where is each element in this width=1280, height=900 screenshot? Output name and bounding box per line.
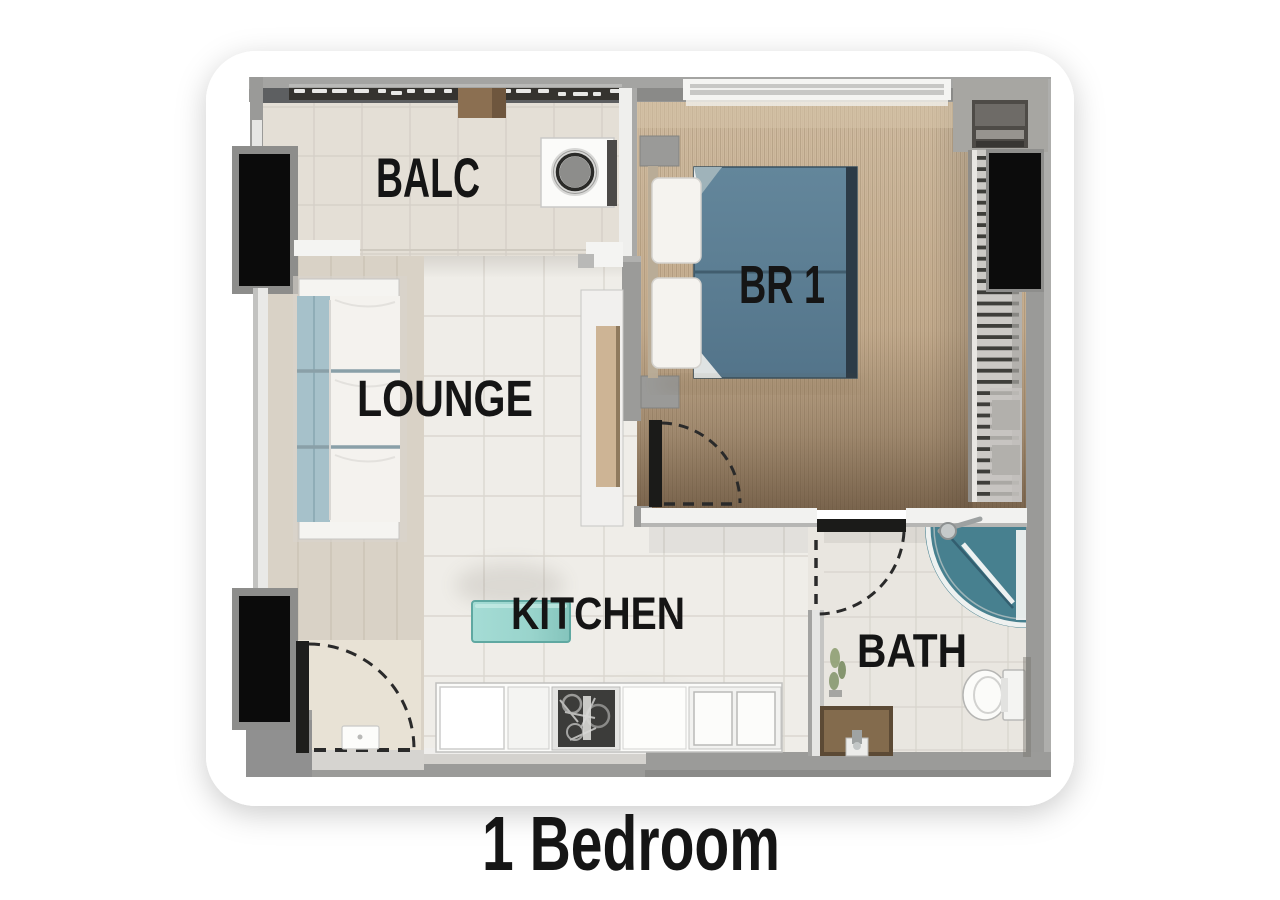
svg-text:BALC: BALC [376,146,480,209]
svg-text:LOUNGE: LOUNGE [357,370,533,427]
svg-text:BR 1: BR 1 [739,255,825,315]
svg-text:KITCHEN: KITCHEN [511,588,685,639]
svg-text:BATH: BATH [857,624,967,677]
svg-text:1 Bedroom: 1 Bedroom [482,801,780,887]
